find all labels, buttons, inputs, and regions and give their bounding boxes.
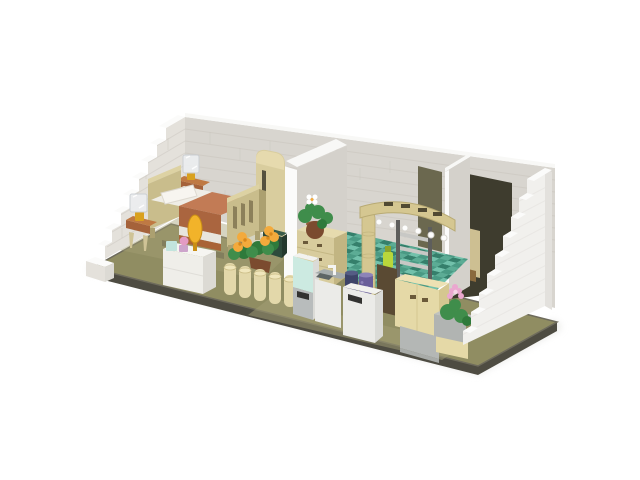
flower-center — [238, 242, 241, 245]
leaf — [462, 316, 472, 326]
flower-center — [266, 236, 269, 239]
dresser-side — [203, 251, 216, 294]
petal — [447, 293, 453, 299]
petal — [452, 284, 458, 290]
right-wall-outer-edge — [545, 168, 552, 310]
leaf — [317, 219, 327, 229]
white-cabinet — [343, 283, 383, 343]
leaf — [449, 299, 461, 311]
stud — [441, 235, 447, 241]
flower-center — [269, 232, 272, 235]
lamp-crystal-shade — [130, 194, 147, 212]
lamp-base — [135, 212, 144, 221]
bed-leg — [150, 228, 155, 238]
fridge-door-mint — [293, 256, 313, 293]
product-image: 3D render of a LEGO-style apartment inte… — [0, 0, 640, 480]
mint-box — [166, 241, 177, 251]
footboard-edge — [259, 189, 266, 233]
lamp-crystal-shade — [183, 155, 199, 173]
flower-center — [243, 238, 246, 241]
bed-leg — [255, 231, 260, 240]
petal — [458, 293, 464, 299]
leaf — [305, 203, 315, 213]
purple-canister-lid — [359, 273, 373, 278]
sink-cabinet — [315, 279, 341, 328]
white-cabinet-side — [375, 290, 383, 343]
stud — [402, 225, 408, 231]
white-cabinet-front — [343, 287, 375, 343]
flower-center — [311, 198, 314, 201]
spray-body — [383, 252, 393, 268]
stud — [376, 219, 382, 225]
faucet-spout — [328, 265, 336, 268]
flower-center — [453, 290, 457, 294]
lego-apartment-render — [0, 0, 640, 480]
cupcake-top — [180, 237, 189, 246]
stud — [389, 222, 395, 228]
gold-plume — [188, 215, 202, 243]
stud — [415, 228, 421, 234]
navy-canister-lid — [345, 271, 358, 276]
spray-cap — [385, 246, 391, 253]
stud — [428, 232, 434, 238]
cupcake-base — [179, 245, 188, 252]
